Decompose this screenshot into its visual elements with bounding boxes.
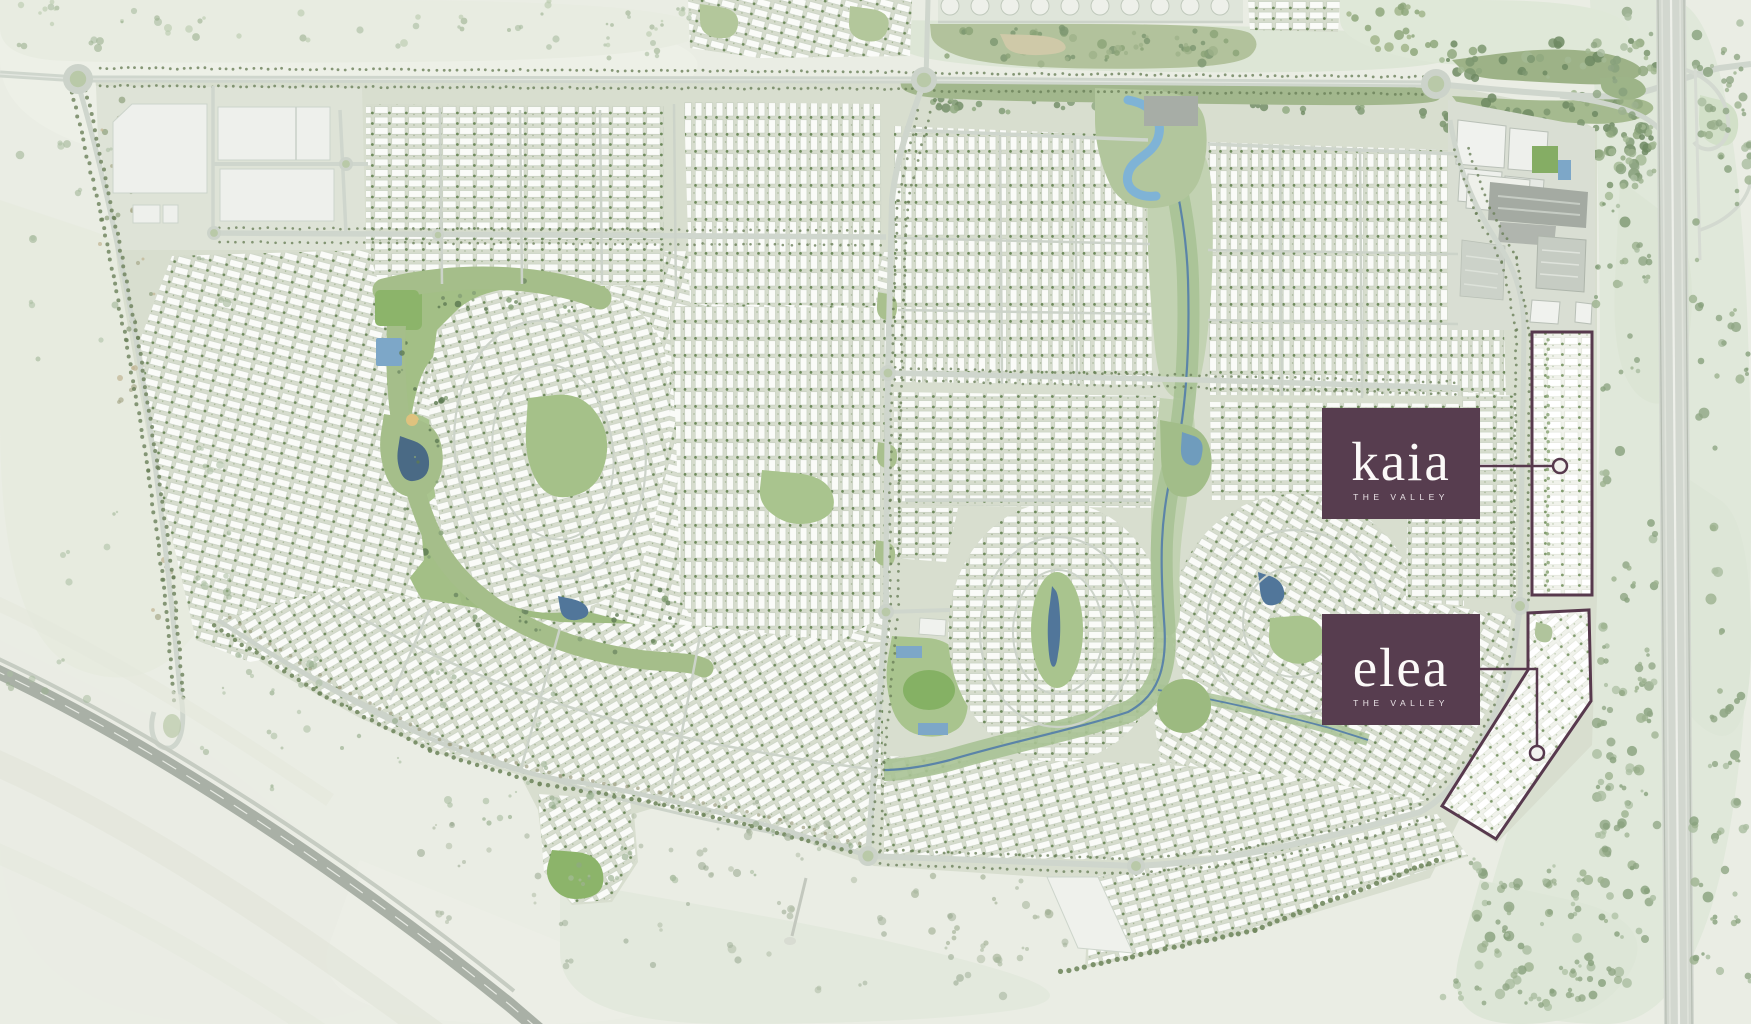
svg-text:kaia: kaia: [1351, 431, 1451, 492]
svg-text:elea: elea: [1353, 637, 1450, 698]
svg-text:THE VALLEY: THE VALLEY: [1353, 492, 1449, 502]
svg-text:THE VALLEY: THE VALLEY: [1353, 698, 1449, 708]
